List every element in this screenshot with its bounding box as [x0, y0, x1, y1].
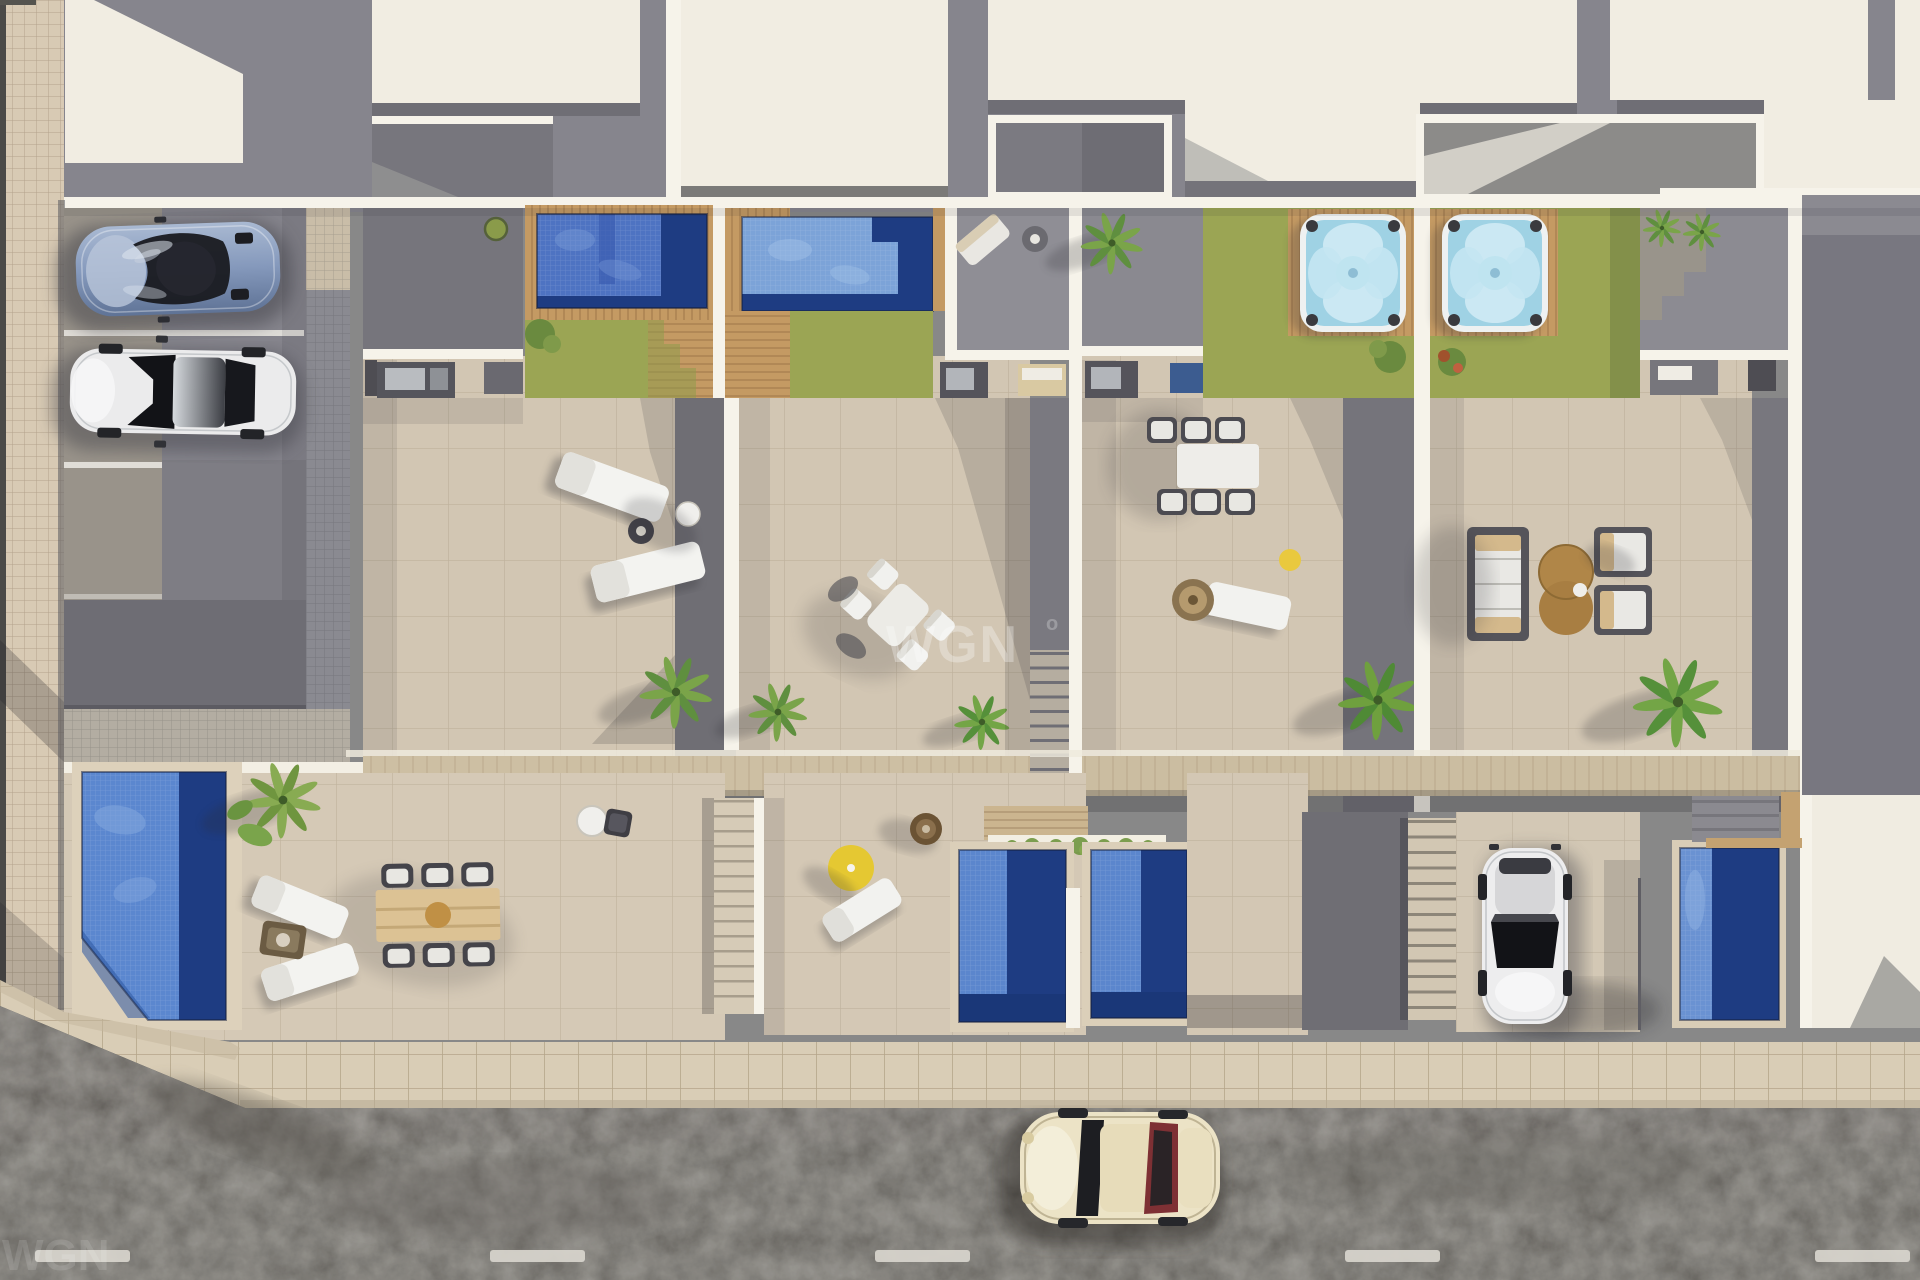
svg-text:o: o	[1046, 613, 1058, 635]
svg-text:WGN: WGN	[2, 1231, 110, 1280]
svg-text:WGN: WGN	[886, 616, 1019, 674]
